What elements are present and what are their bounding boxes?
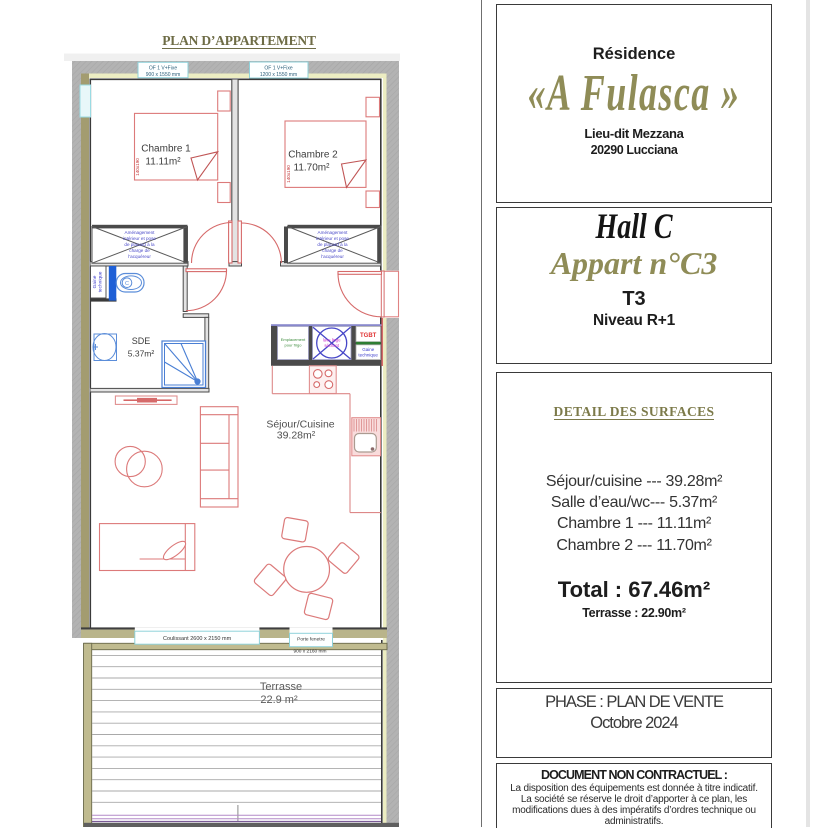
svg-text:5.37m²: 5.37m²	[128, 349, 155, 359]
svg-text:Coulissant 2600 x 2150 mm: Coulissant 2600 x 2150 mm	[163, 636, 232, 642]
svg-text:charge de: charge de	[129, 248, 150, 253]
svg-text:l’acquéreur: l’acquéreur	[128, 254, 151, 259]
svg-text:140x190: 140x190	[286, 165, 291, 183]
svg-text:séchant: séchant	[324, 343, 340, 348]
svg-text:de placard à la: de placard à la	[317, 242, 348, 247]
svg-text:SDE: SDE	[132, 336, 151, 346]
svg-text:C: C	[125, 281, 129, 287]
svg-text:Terrasse: Terrasse	[260, 681, 302, 693]
svg-text:Chambre 1: Chambre 1	[141, 144, 191, 155]
svg-text:Aménagement: Aménagement	[318, 230, 349, 235]
svg-text:140x190: 140x190	[135, 158, 140, 176]
svg-text:Chambre 2: Chambre 2	[288, 150, 338, 161]
svg-text:Porte fenetre: Porte fenetre	[297, 637, 325, 643]
svg-text:Gaine: Gaine	[362, 347, 375, 352]
svg-text:de placard à la: de placard à la	[124, 242, 155, 247]
svg-text:39.28m²: 39.28m²	[277, 430, 316, 442]
svg-text:Gaine: Gaine	[92, 275, 98, 288]
svg-text:900 x 1550 mm: 900 x 1550 mm	[146, 72, 180, 78]
svg-text:intérieur et pose: intérieur et pose	[123, 236, 156, 241]
svg-text:pour frigo: pour frigo	[285, 343, 303, 348]
svg-text:OF 1 V+Fixe: OF 1 V+Fixe	[149, 66, 177, 72]
svg-text:1200 x 1550 mm: 1200 x 1550 mm	[260, 72, 297, 78]
svg-text:OF 1 V+Fixe: OF 1 V+Fixe	[264, 66, 292, 72]
svg-text:lave linge: lave linge	[323, 338, 341, 343]
svg-text:l’acquéreur: l’acquéreur	[321, 254, 344, 259]
svg-text:technique: technique	[98, 271, 104, 292]
svg-text:22.9 m²: 22.9 m²	[260, 694, 298, 706]
svg-text:11.70m²: 11.70m²	[294, 163, 331, 174]
svg-text:Emplacement: Emplacement	[281, 337, 306, 342]
svg-text:11.11m²: 11.11m²	[145, 157, 181, 168]
svg-text:charge de: charge de	[322, 248, 343, 253]
svg-text:Aménagement: Aménagement	[125, 230, 156, 235]
svg-text:900 x 2160 mm: 900 x 2160 mm	[293, 649, 326, 655]
svg-text:TGBT: TGBT	[360, 333, 377, 339]
svg-text:intérieur et pose: intérieur et pose	[316, 236, 349, 241]
svg-text:technique: technique	[358, 353, 378, 358]
